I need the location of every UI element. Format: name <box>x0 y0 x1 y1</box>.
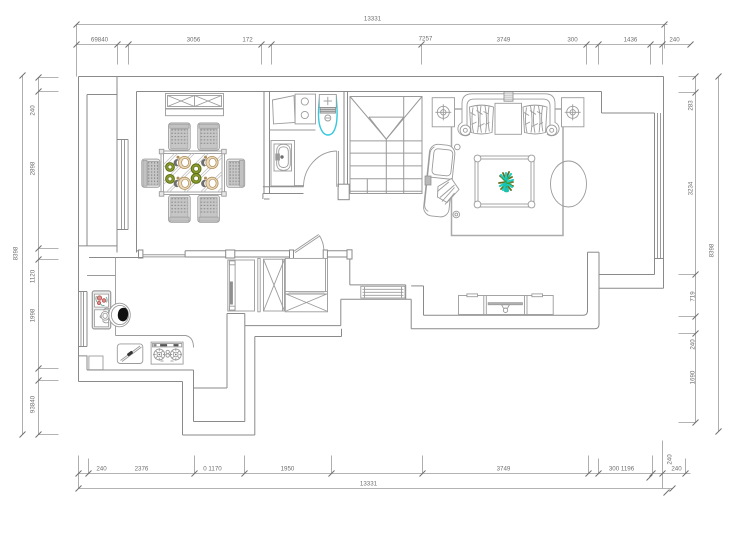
svg-text:300 1196: 300 1196 <box>609 466 635 473</box>
svg-text:3234: 3234 <box>688 181 695 195</box>
svg-text:172: 172 <box>242 37 253 44</box>
svg-text:7257: 7257 <box>419 36 433 43</box>
svg-text:719: 719 <box>690 291 697 302</box>
svg-text:3749: 3749 <box>497 37 511 44</box>
svg-text:1690: 1690 <box>690 370 697 384</box>
svg-text:240: 240 <box>669 37 680 44</box>
svg-text:240: 240 <box>671 466 682 473</box>
svg-text:300: 300 <box>567 37 578 44</box>
svg-text:69840: 69840 <box>91 37 109 44</box>
svg-text:3056: 3056 <box>187 37 201 44</box>
svg-text:93840: 93840 <box>30 395 37 413</box>
svg-text:8398: 8398 <box>709 243 716 257</box>
svg-text:13331: 13331 <box>364 16 382 23</box>
svg-text:3749: 3749 <box>497 466 511 473</box>
svg-text:240: 240 <box>690 339 697 350</box>
svg-text:1436: 1436 <box>624 37 638 44</box>
svg-text:240: 240 <box>667 454 674 465</box>
svg-text:2898: 2898 <box>30 161 37 175</box>
svg-text:8398: 8398 <box>13 246 20 260</box>
svg-text:1998: 1998 <box>30 308 37 322</box>
svg-text:283: 283 <box>688 100 695 111</box>
svg-text:0 1170: 0 1170 <box>203 466 222 473</box>
svg-text:1120: 1120 <box>30 269 37 283</box>
svg-text:1950: 1950 <box>281 466 295 473</box>
svg-text:2376: 2376 <box>135 466 149 473</box>
svg-text:240: 240 <box>96 466 107 473</box>
svg-text:240: 240 <box>30 105 37 116</box>
svg-text:13331: 13331 <box>360 481 378 488</box>
